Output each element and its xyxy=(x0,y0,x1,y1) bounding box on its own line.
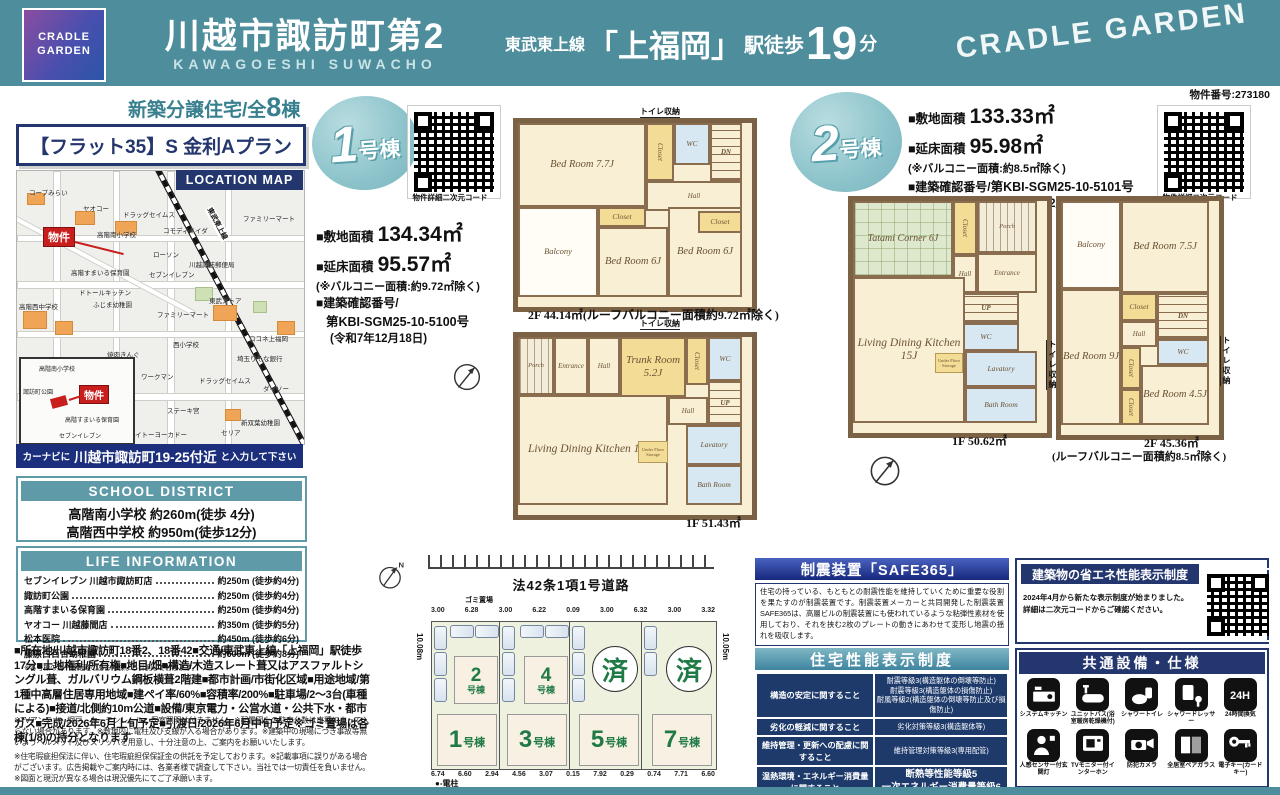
lots-area: 2 号棟 1 号棟 4 号棟 3 xyxy=(431,621,717,770)
car-navi-bar: カーナビに 川越市諏訪町19-25付近 と入力して下さい xyxy=(16,444,303,468)
unit2-badge: 2 号棟 xyxy=(787,88,906,196)
lot-number: 2 xyxy=(471,666,482,685)
life-information-box: LIFE INFORMATION セブンイレブン 川越市諏訪町店約250m (徒… xyxy=(16,546,307,642)
leader-dots xyxy=(111,626,215,628)
shower-dresser-icon xyxy=(1175,678,1208,711)
walk-unit: 分 xyxy=(859,30,877,56)
map-inset-label: 高階すまいる保育園 xyxy=(65,415,119,424)
leader-dots xyxy=(72,597,214,599)
lot-label-upper: 2 号棟 xyxy=(454,656,498,704)
table-row: 劣化の軽減に関すること劣化対策等級3(構造躯体等) xyxy=(756,718,1008,736)
lot-label-upper: 4 号棟 xyxy=(524,656,568,704)
room-label: Closet xyxy=(656,143,664,161)
room: Lavatory xyxy=(965,351,1037,387)
equipment-label: 全居室ペアガラス xyxy=(1167,763,1215,770)
map-label: 高階南小学校 xyxy=(97,229,136,239)
dimension-value: 0.74 xyxy=(647,771,661,778)
school-district-box: SCHOOL DISTRICT 高階南小学校 約260m(徒歩 4分) 高階西中… xyxy=(16,476,307,542)
unit1-1f-plan: PorchEntranceHallTrunk Room 5.2JClosetWC… xyxy=(513,332,757,520)
car-icon xyxy=(520,625,544,638)
room: UP xyxy=(708,381,742,425)
map-inset-label: 諏訪町公園 xyxy=(23,387,53,396)
life-item-name: 高階すまいる保育園 xyxy=(24,603,105,616)
energy-header: 建築物の省エネ性能表示制度 xyxy=(1021,564,1199,584)
perf-value: 劣化対策等級3(構造躯体等) xyxy=(874,718,1008,736)
lot-suffix: 号棟 xyxy=(533,738,555,749)
unit2-2f-note: (ルーフバルコニー面積約8.5㎡除く) xyxy=(1052,448,1226,464)
floor-area-value: 95.57㎡ xyxy=(378,248,452,278)
compass-icon xyxy=(448,358,486,396)
safe365-body: 住宅の持っている、もともとの耐震性能を維持していくために重要な役割を果たすのが制… xyxy=(755,583,1009,646)
equipment-item: ユニットバス(浴室暖房乾燥機付) xyxy=(1068,678,1117,726)
map-label: ダイソー xyxy=(263,383,289,393)
dimension-value: 2.94 xyxy=(485,771,499,778)
map-label: ドラッグセイムス xyxy=(123,209,175,219)
room-label: Bed Room 6J xyxy=(677,246,733,258)
life-item-distance: 約250m (徒歩約4分) xyxy=(217,603,299,616)
sale-count: 8 xyxy=(266,92,281,122)
station-access: 東武東上線 「上福岡」 駅徒歩 19 分 xyxy=(505,0,877,86)
permit-number: 第KBI-SGM25-10-5101号 xyxy=(991,176,1134,195)
lot-column: 済 5 号棟 xyxy=(570,622,642,769)
balcony-note: (※バルコニー面積:約8.5㎡除く) xyxy=(908,160,1158,176)
equipment-item: 電子キー(カードキー) xyxy=(1216,729,1265,777)
room-label: WC xyxy=(980,333,991,342)
room-label: WC xyxy=(686,140,697,149)
room-label: Hall xyxy=(1133,330,1145,338)
brand-wordmark: CRADLE GARDEN xyxy=(954,0,1266,66)
life-item-name: 諏訪町公園 xyxy=(24,589,69,602)
room: Bed Room 9J xyxy=(1061,289,1121,425)
room-label: Porch xyxy=(528,362,544,369)
dimension-value: 3.00 xyxy=(600,607,614,614)
dimension-value: 3.07 xyxy=(539,771,553,778)
toilet-storage-label: トイレ収納 xyxy=(1220,336,1232,386)
lot-number: 5 xyxy=(591,728,604,752)
unit1-specs: ■敷地面積134.34㎡ ■延床面積95.57㎡ (※バルコニー面積:約9.72… xyxy=(316,218,506,346)
floor-area-label: ■延床面積 xyxy=(316,256,374,275)
room-label: Bath Room xyxy=(697,481,731,490)
inset-property-lot xyxy=(50,395,68,409)
dimension-value: 0.15 xyxy=(566,771,580,778)
car-icon xyxy=(644,626,657,650)
room: Hall xyxy=(588,337,620,395)
electronic-key-icon xyxy=(1224,729,1257,762)
room: Lavatory xyxy=(686,425,742,465)
room-label: Closet xyxy=(612,213,631,222)
lot-column: 済 7 号棟 xyxy=(642,622,716,769)
dimension-right: 10.05m xyxy=(721,633,730,660)
land-area-value: 134.34㎡ xyxy=(378,218,463,248)
room-label: Closet xyxy=(961,219,969,237)
room: Closet xyxy=(1121,389,1141,425)
room: DN xyxy=(710,123,742,181)
school-item: 高階西中学校 約950m(徒歩12分) xyxy=(18,524,305,542)
unit2-suffix: 号棟 xyxy=(838,132,882,165)
map-label: コープみらい xyxy=(29,187,68,197)
unit1-badge: 1 号棟 xyxy=(309,92,421,193)
toilet-storage-label: トイレ収納 xyxy=(640,318,680,330)
room-label: Lavatory xyxy=(987,365,1014,374)
room: Under Floor Storage xyxy=(638,441,668,463)
room-label: Trunk Room 5.2J xyxy=(622,354,684,379)
unit2-2f-plan: BalconyBed Room 7.5JClosetDNHallWCBed Ro… xyxy=(1056,196,1224,440)
room: Bed Room 7.5J xyxy=(1121,201,1209,293)
permit-number: 第KBI-SGM25-10-5100号 xyxy=(326,311,506,330)
balcony-note: (※バルコニー面積:約9.72㎡除く) xyxy=(316,278,506,294)
motion-sensor-light-icon xyxy=(1027,729,1060,762)
unit1-qr-label: 物件詳細二次元コード xyxy=(400,192,500,203)
equipment-item: シャワートイレ xyxy=(1117,678,1166,726)
compass-icon xyxy=(864,450,906,492)
leader-dots xyxy=(63,640,214,642)
dimension-left: 10.08m xyxy=(415,633,424,660)
table-row: 維持管理・更新への配慮に関すること維持管理対策等級3(専用配管) xyxy=(756,736,1008,766)
room-label: Porch xyxy=(999,223,1015,230)
car-icon xyxy=(502,626,515,650)
permit-label: ■建築確認番号/ xyxy=(908,178,991,195)
lot-number: 4 xyxy=(541,666,552,685)
dimension-value: 0.29 xyxy=(620,771,634,778)
room-label: UP xyxy=(720,399,729,407)
room-label: Balcony xyxy=(1077,240,1105,250)
room-label: Bed Room 4.5J xyxy=(1143,389,1207,401)
flyer-page: CRADLE GARDEN 川越市諏訪町第2 KAWAGOESHI SUWACH… xyxy=(0,0,1280,795)
room-label: Bed Room 7.5J xyxy=(1133,241,1197,253)
dimension-value: 6.22 xyxy=(532,607,546,614)
car-icon xyxy=(545,625,569,638)
room-label: Bed Room 7.7J xyxy=(550,159,614,171)
map-label: 高階すまいる保育園 xyxy=(71,267,130,277)
equipment-label: 防犯カメラ xyxy=(1127,763,1157,770)
dimension-value: 6.60 xyxy=(458,771,472,778)
perf-value: 維持管理対策等級3(専用配管) xyxy=(874,736,1008,766)
security-camera-icon xyxy=(1125,729,1158,762)
lot-label-lower: 7 号棟 xyxy=(652,714,712,766)
life-item-name: セブンイレブン 川越市諏訪町店 xyxy=(24,574,153,587)
dimension-value: 4.56 xyxy=(512,771,526,778)
navi-address: 川越市諏訪町19-25付近 xyxy=(74,446,217,466)
room-label: Entrance xyxy=(994,269,1020,277)
table-row: 構造の安定に関すること耐震等級3(構造躯体の倒壊等防止) 耐震等級3(構造躯体の… xyxy=(756,673,1008,718)
dimension-value: 6.32 xyxy=(634,607,648,614)
map-label: 新双葉幼稚園 xyxy=(241,417,280,427)
performance-panel: 住宅性能表示制度 構造の安定に関すること耐震等級3(構造躯体の倒壊等防止) 耐震… xyxy=(755,648,1009,788)
map-label: ココネ上福岡 xyxy=(249,333,288,343)
north-letter: N xyxy=(399,561,405,570)
room: Tatami Corner 6J xyxy=(853,201,953,277)
map-label: 西小学校 xyxy=(173,339,199,349)
room: WC xyxy=(674,123,710,165)
map-label: ヤオコー xyxy=(83,203,109,213)
lot-suffix: 号棟 xyxy=(537,686,555,695)
sold-badge: 済 xyxy=(666,646,712,692)
unit1-suffix: 号棟 xyxy=(357,133,401,166)
permit-date: (令和7年12月18日) xyxy=(330,330,506,346)
dimension-value: 3.00 xyxy=(431,607,445,614)
lot-label-lower: 3 号棟 xyxy=(507,714,567,766)
unit2-number: 2 xyxy=(809,118,840,170)
top-dimensions: 3.006.283.006.220.093.006.323.003.32 xyxy=(431,607,715,614)
perf-value: 耐震等級3(構造躯体の倒壊等防止) 耐震等級3(構造躯体の損傷防止) 耐風等級2… xyxy=(874,673,1008,718)
sold-badge: 済 xyxy=(592,646,638,692)
school-item: 高階南小学校 約260m(徒歩 4分) xyxy=(18,506,305,524)
sale-suffix: 棟 xyxy=(281,100,300,121)
room: Bath Room xyxy=(686,465,742,505)
room: Porch xyxy=(518,337,554,395)
dimension-value: 7.92 xyxy=(593,771,607,778)
lot-number: 7 xyxy=(664,728,677,752)
room: Living Dining Kitchen 15J xyxy=(853,277,965,423)
map-label: 川越諏訪郵便局 xyxy=(189,259,235,269)
car-icon xyxy=(434,652,447,676)
dimension-value: 7.71 xyxy=(674,771,688,778)
map-label: ドラッグセイムス xyxy=(199,375,251,385)
room: Balcony xyxy=(518,207,598,297)
room-label: Balcony xyxy=(544,247,572,257)
system-kitchen-icon xyxy=(1027,678,1060,711)
room-label: Under Floor Storage xyxy=(639,447,667,457)
map-label: ステーキ宮 xyxy=(167,405,200,415)
life-item: 諏訪町公園約250m (徒歩約4分) xyxy=(18,589,305,602)
navi-suffix: と入力して下さい xyxy=(221,449,297,463)
car-icon xyxy=(450,625,474,638)
car-icon xyxy=(572,678,585,702)
trash-area-label: ゴミ置場 xyxy=(465,595,493,605)
equipment-label: 24時間換気 xyxy=(1225,712,1256,719)
room: Balcony xyxy=(1061,201,1121,289)
lot-label-lower: 1 号棟 xyxy=(437,714,497,766)
disclaimer-1: ※TVアンテナ、網戸、カーテンレール、居室照明は付きません。※配置図上の駐車台数… xyxy=(14,716,372,749)
room: Entrance xyxy=(977,253,1037,293)
room: Closet xyxy=(1121,293,1157,321)
equipment-label: 電子キー(カードキー) xyxy=(1216,763,1265,777)
dimension-value: 6.74 xyxy=(431,771,445,778)
room-label: Bath Room xyxy=(984,401,1018,410)
equipment-label: 人感センサー付玄関灯 xyxy=(1019,763,1068,777)
life-item-distance: 約250m (徒歩約4分) xyxy=(217,589,299,602)
lot-number: 1 xyxy=(449,728,462,752)
room: Closet xyxy=(646,123,674,181)
car-icon xyxy=(502,652,515,676)
map-label: ファミリーマート xyxy=(243,213,295,223)
room-label: WC xyxy=(719,355,730,364)
floor-area-label: ■延床面積 xyxy=(908,138,966,157)
map-label: ローソン xyxy=(153,249,179,259)
logo-line2: GARDEN xyxy=(37,45,91,59)
map-label: ふじま幼稚園 xyxy=(93,299,132,309)
map-park xyxy=(253,301,267,313)
room-label: Under Floor Storage xyxy=(936,358,962,368)
station-name: 「上福岡」 xyxy=(587,21,742,66)
dimension-value: 6.28 xyxy=(465,607,479,614)
dimension-value: 3.00 xyxy=(499,607,513,614)
equipment-item: 24H 24時間換気 xyxy=(1216,678,1265,726)
room: Porch xyxy=(977,201,1037,253)
pair-glass-icon xyxy=(1175,729,1208,762)
page-title: 川越市諏訪町第2 xyxy=(120,8,490,59)
unit1-2f-plan: Bed Room 7.7JClosetWCDNHallBalconyCloset… xyxy=(513,118,757,312)
sale-prefix: 新築分譲住宅/全 xyxy=(128,100,266,121)
energy-panel: 建築物の省エネ性能表示制度 2024年4月から新たな表示制度が始まりました。 詳… xyxy=(1015,558,1269,644)
land-area-value: 133.33㎡ xyxy=(970,100,1055,130)
room-label: Closet xyxy=(1127,359,1135,377)
land-area-label: ■敷地面積 xyxy=(316,226,374,245)
disclaimer-2: ※住宅瑕疵担保法に伴い、住宅瑕疵担保保証金の供託を予定しております。※記載事項に… xyxy=(14,752,372,785)
equipment-label: シャワードレッサー xyxy=(1167,712,1216,726)
room: Closet xyxy=(1121,347,1141,389)
safe365-header: 制震装置「SAFE365」 xyxy=(755,558,1009,580)
room: Closet xyxy=(953,201,977,255)
room: Bed Room 7.7J xyxy=(518,123,646,207)
energy-body: 2024年4月から新たな表示制度が始まりました。 詳細は二次元コードからご確認く… xyxy=(1023,592,1199,616)
location-map-tag: LOCATION MAP xyxy=(176,170,303,190)
equipment-item: システムキッチン xyxy=(1019,678,1068,726)
room-label: DN xyxy=(721,148,731,156)
map-label: 埼玉りそな銀行 xyxy=(237,353,283,363)
inset-property-marker: 物件 xyxy=(79,385,109,404)
room-label: Bed Room 9J xyxy=(1063,351,1119,363)
equipment-item: 防犯カメラ xyxy=(1117,729,1166,777)
unit2-1f-caption: 1F 50.62㎡ xyxy=(952,432,1007,449)
road-hatching xyxy=(428,555,714,569)
map-inset-label: 高階南小学校 xyxy=(39,364,75,373)
life-item-name: ヤオコー 川越藤間店 xyxy=(24,618,108,631)
room: Entrance xyxy=(554,337,588,395)
life-information-header: LIFE INFORMATION xyxy=(21,551,302,571)
car-icon xyxy=(644,652,657,676)
header-band: CRADLE GARDEN 川越市諏訪町第2 KAWAGOESHI SUWACH… xyxy=(0,0,1280,86)
map-label: セリア xyxy=(221,427,241,437)
map-label: イトーヨーカドー xyxy=(135,429,187,439)
room-label: Tatami Corner 6J xyxy=(868,233,939,245)
lot-number: 3 xyxy=(519,728,532,752)
room-label: DN xyxy=(1178,312,1188,320)
life-item-distance: 約250m (徒歩約4分) xyxy=(217,574,299,587)
car-icon xyxy=(572,626,585,650)
page-subtitle: KAWAGOESHI SUWACHO xyxy=(120,56,490,72)
equipment-header: 共通設備・仕様 xyxy=(1019,652,1265,674)
map-building xyxy=(23,311,47,329)
leader-dots xyxy=(156,582,215,584)
perf-label: 構造の安定に関すること xyxy=(756,673,874,718)
energy-qr-code xyxy=(1201,568,1275,642)
room-label: Closet xyxy=(693,352,701,370)
room: Hall xyxy=(668,397,708,425)
unit1-qr-code xyxy=(408,106,500,198)
room-label: WC xyxy=(1177,348,1188,357)
dimension-value: 3.32 xyxy=(701,607,715,614)
lot-suffix: 号棟 xyxy=(467,686,485,695)
room-label: Closet xyxy=(710,218,729,227)
toilet-storage-label: トイレ収納 xyxy=(640,106,680,118)
floor-area-value: 95.98㎡ xyxy=(970,130,1044,160)
permit-label: ■建築確認番号/ xyxy=(316,294,506,311)
location-map: 東武東上線 コープみらいヤオコードラッグセイムスコモディイイダファミリーマート高… xyxy=(16,170,305,445)
equipment-label: TVモニター付インターホン xyxy=(1068,763,1117,777)
room-label: Hall xyxy=(598,362,610,370)
perf-label: 維持管理・更新への配慮に関すること xyxy=(756,736,874,766)
car-icon xyxy=(475,625,499,638)
flat35-plan-box: 【フラット35】S 金利Aプラン xyxy=(16,124,306,166)
room: DN xyxy=(1157,293,1209,339)
perf-label: 劣化の軽減に関すること xyxy=(756,718,874,736)
property-marker: 物件 xyxy=(43,227,75,247)
unit1-1f-caption: 1F 51.43㎡ xyxy=(686,514,741,531)
equipment-label: システムキッチン xyxy=(1020,712,1068,719)
life-item: 高階すまいる保育園約250m (徒歩約4分) xyxy=(18,603,305,616)
map-label: 高階西中学校 xyxy=(19,301,58,311)
school-district-header: SCHOOL DISTRICT xyxy=(21,481,302,501)
site-plan: N 法42条1項1号道路 ゴミ置場 10.08m 10.05m 3.006.28… xyxy=(373,553,755,789)
walk-minutes: 19 xyxy=(806,20,857,66)
life-item: セブンイレブン 川越市諏訪町店約250m (徒歩約4分) xyxy=(18,574,305,587)
bottom-accent-strip xyxy=(0,787,1280,795)
equipment-item: TVモニター付インターホン xyxy=(1068,729,1117,777)
road-label: 法42条1項1号道路 xyxy=(428,575,714,594)
life-item: ヤオコー 川越藤間店約350m (徒歩約5分) xyxy=(18,618,305,631)
lot-suffix: 号棟 xyxy=(678,738,700,749)
room: Hall xyxy=(1121,321,1157,347)
room: Trunk Room 5.2J xyxy=(620,337,686,397)
leader-dots xyxy=(108,611,214,613)
dimension-value: 3.00 xyxy=(668,607,682,614)
rail-line: 東武東上線 xyxy=(505,31,585,55)
shower-toilet-icon xyxy=(1125,678,1158,711)
land-area-label: ■敷地面積 xyxy=(908,108,966,127)
car-icon xyxy=(434,678,447,702)
map-inset: 高階南小学校諏訪町公園高階すまいる保育園セブンイレブン 物件 xyxy=(19,357,135,445)
map-inset-label: セブンイレブン xyxy=(59,431,101,440)
lot-suffix: 号棟 xyxy=(463,738,485,749)
map-label: ワークマン xyxy=(141,371,174,381)
equipment-item: 全居室ペアガラス xyxy=(1167,729,1216,777)
dimension-value: 0.09 xyxy=(566,607,580,614)
map-building xyxy=(225,409,241,421)
room: WC xyxy=(708,337,742,381)
room: Bed Room 6J xyxy=(598,227,668,297)
navi-prefix: カーナビに xyxy=(23,449,71,463)
cradle-garden-logo: CRADLE GARDEN xyxy=(22,8,106,82)
performance-table: 構造の安定に関すること耐震等級3(構造躯体の倒壊等防止) 耐震等級3(構造躯体の… xyxy=(755,672,1009,795)
life-item-distance: 約350m (徒歩約5分) xyxy=(217,618,299,631)
sale-type: 新築分譲住宅/全8棟 xyxy=(128,92,300,123)
equipment-panel: 共通設備・仕様 システムキッチン ユニットバス(浴室暖房乾燥機付) シャワートイ… xyxy=(1015,648,1269,788)
equipment-item: シャワードレッサー xyxy=(1167,678,1216,726)
safe365-panel: 制震装置「SAFE365」 住宅の持っている、もともとの耐震性能を維持していくた… xyxy=(755,558,1009,644)
room: Closet xyxy=(686,337,708,385)
lot-label-lower: 5 号棟 xyxy=(579,714,639,766)
24h-ventilation-icon: 24H xyxy=(1224,678,1257,711)
map-building xyxy=(55,321,73,335)
room-label: UP xyxy=(981,304,990,312)
lot-suffix: 号棟 xyxy=(605,738,627,749)
walk-label: 駅徒歩 xyxy=(744,29,804,58)
map-label: 東武ストア xyxy=(209,295,242,305)
bottom-dimensions: 6.746.602.944.563.070.157.920.290.747.71… xyxy=(431,771,715,778)
dimension-value: 6.60 xyxy=(701,771,715,778)
lot-column: 2 号棟 1 号棟 xyxy=(432,622,500,769)
room-label: Lavatory xyxy=(700,441,727,450)
performance-header: 住宅性能表示制度 xyxy=(755,648,1009,670)
map-label: ファミリーマート xyxy=(157,309,209,319)
map-building xyxy=(75,211,95,225)
room-label: Hall xyxy=(682,407,694,415)
room: Closet xyxy=(598,207,646,227)
compass-icon: N xyxy=(373,559,407,593)
room: Bath Room xyxy=(965,387,1037,423)
room: Closet xyxy=(698,211,742,233)
